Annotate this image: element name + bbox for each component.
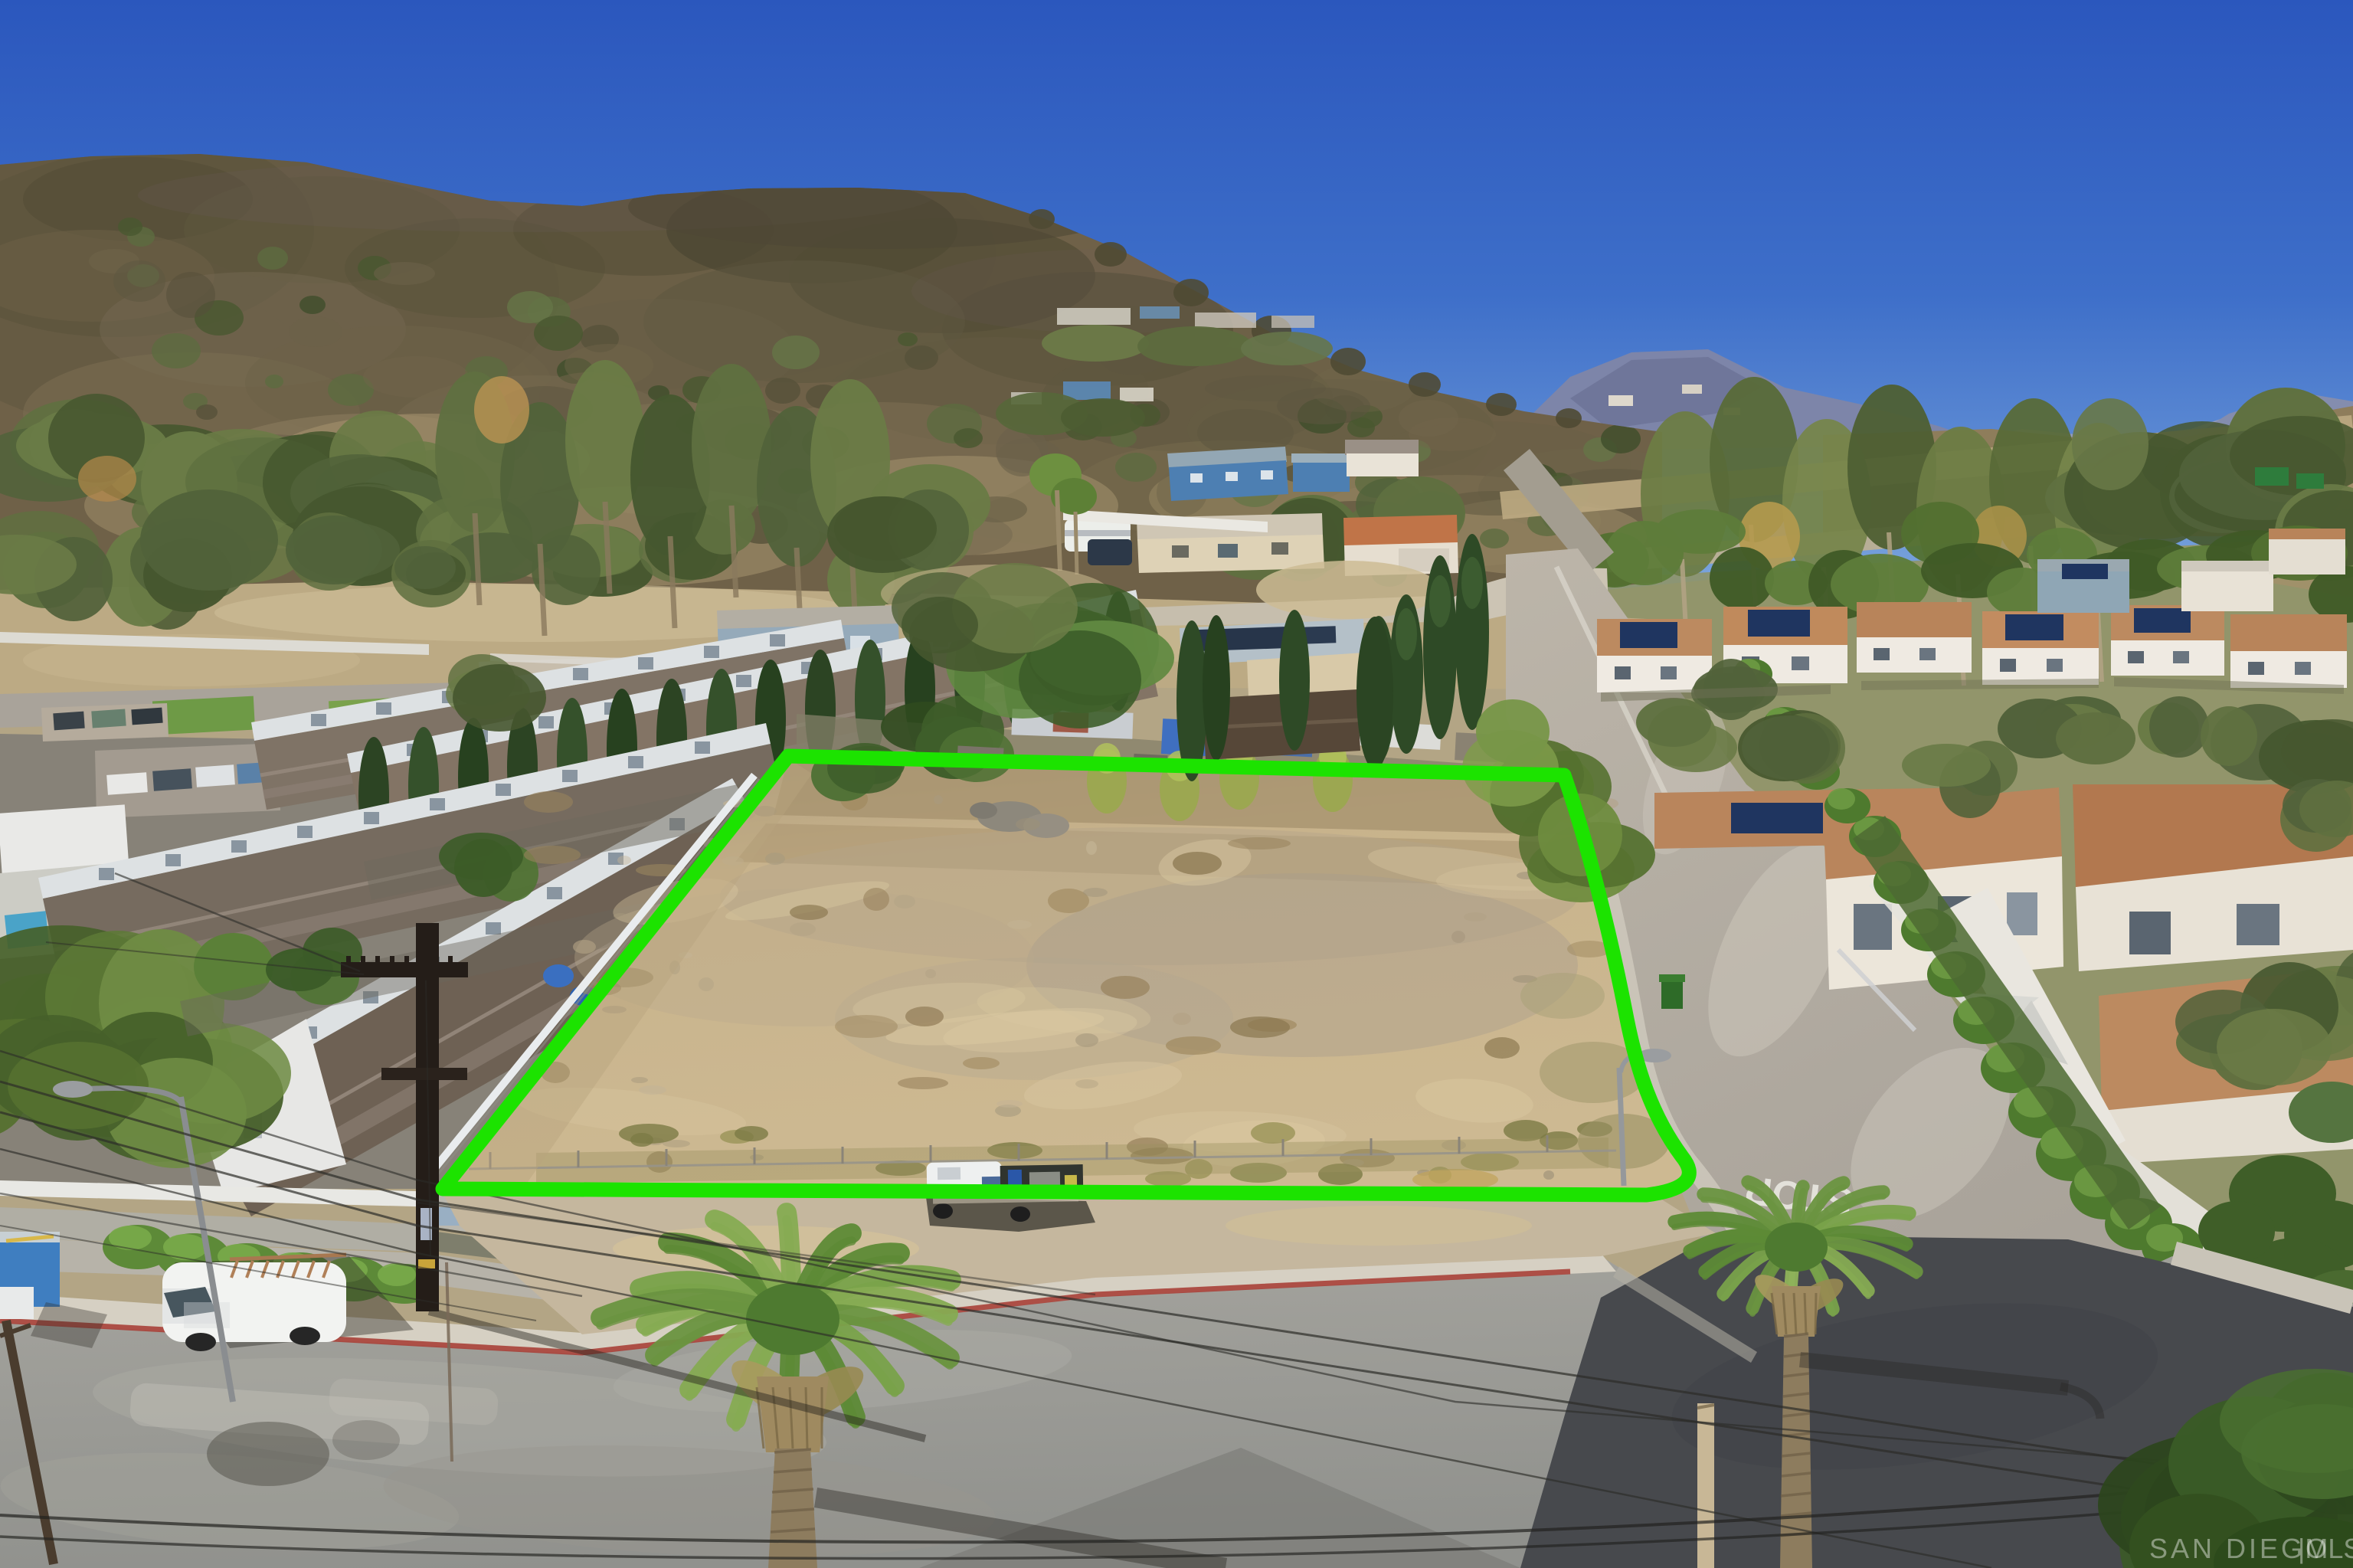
svg-text:|MLS: |MLS xyxy=(2298,1533,2353,1564)
